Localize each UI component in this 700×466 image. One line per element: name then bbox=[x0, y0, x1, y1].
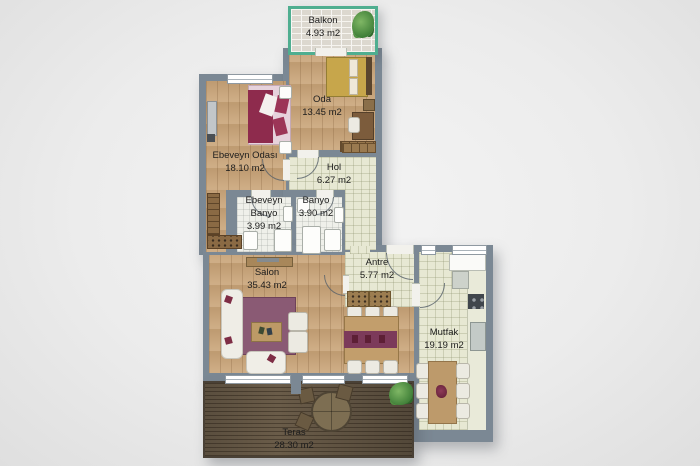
table-decor bbox=[379, 335, 385, 343]
centerpiece bbox=[436, 385, 447, 398]
room-name: Banyo bbox=[246, 207, 283, 220]
room-area: 18.10 m2 bbox=[213, 162, 278, 175]
shoe-shelf bbox=[207, 235, 242, 249]
armchair bbox=[288, 312, 308, 331]
headboard bbox=[366, 57, 372, 95]
sink bbox=[334, 207, 344, 223]
dining-chair bbox=[365, 360, 380, 374]
shower bbox=[324, 229, 341, 251]
window-salon-left bbox=[225, 375, 291, 384]
window-antre bbox=[421, 245, 436, 255]
shoe-cabinet bbox=[347, 291, 369, 307]
nightstand bbox=[363, 99, 375, 111]
room-label-ebeveyn-banyo: Ebeveyn Banyo 3.99 m2 bbox=[246, 194, 283, 233]
nightstand bbox=[279, 141, 292, 154]
room-area: 6.27 m2 bbox=[317, 174, 351, 187]
room-label-antre: Antre 5.77 m2 bbox=[360, 256, 394, 282]
room-hol-floor-lower bbox=[345, 190, 376, 250]
balcony-door-threshold bbox=[315, 48, 347, 56]
kitchen-chair bbox=[456, 403, 470, 419]
dresser bbox=[207, 101, 217, 136]
terrace-pillar bbox=[291, 373, 301, 394]
room-area: 35.43 m2 bbox=[247, 279, 287, 292]
bed-single bbox=[326, 57, 368, 97]
room-name: Antre bbox=[360, 256, 394, 269]
kitchen-sink bbox=[470, 322, 486, 351]
room-name: Mutfak bbox=[424, 326, 464, 339]
pillow bbox=[349, 78, 358, 95]
window-mutfak bbox=[452, 245, 487, 255]
ebeveyn-door-threshold bbox=[283, 159, 290, 181]
fridge bbox=[449, 254, 486, 271]
room-name: Teras bbox=[274, 426, 314, 439]
room-name: Ebeveyn bbox=[246, 194, 283, 207]
room-area: 3.90 m2 bbox=[299, 207, 333, 220]
shoe-cabinet bbox=[369, 291, 391, 307]
table-decor bbox=[266, 328, 272, 336]
nightstand bbox=[279, 86, 292, 99]
window-salon-right bbox=[302, 375, 345, 384]
bathtub bbox=[302, 226, 321, 254]
room-name: Hol bbox=[317, 161, 351, 174]
loveseat bbox=[246, 351, 286, 374]
room-name: Salon bbox=[247, 266, 287, 279]
room-label-banyo: Banyo 3.90 m2 bbox=[299, 194, 333, 220]
room-label-salon: Salon 35.43 m2 bbox=[247, 266, 287, 292]
dining-chair bbox=[347, 360, 362, 374]
table-decor bbox=[365, 335, 371, 343]
toilet bbox=[243, 231, 258, 250]
armchair bbox=[288, 331, 308, 353]
hall-cabinet bbox=[342, 143, 376, 153]
kitchen-door-threshold bbox=[412, 283, 420, 307]
room-area: 13.45 m2 bbox=[302, 106, 342, 119]
room-name: Banyo bbox=[299, 194, 333, 207]
stove bbox=[468, 294, 484, 309]
room-area: 3.99 m2 bbox=[246, 220, 283, 233]
room-name: Ebeveyn Odası bbox=[213, 149, 278, 162]
room-label-ebeveyn-odasi: Ebeveyn Odası 18.10 m2 bbox=[213, 149, 278, 175]
kitchen-chair bbox=[456, 363, 470, 379]
room-label-oda: Oda 13.45 m2 bbox=[302, 93, 342, 119]
table-decor bbox=[352, 335, 358, 343]
room-label-hol: Hol 6.27 m2 bbox=[317, 161, 351, 187]
wardrobe bbox=[207, 193, 220, 235]
room-name: Balkon bbox=[306, 14, 340, 27]
room-area: 19.19 m2 bbox=[424, 339, 464, 352]
sink bbox=[283, 206, 293, 222]
desk-chair bbox=[348, 117, 360, 133]
counter-corner bbox=[452, 271, 469, 289]
wall-unit bbox=[207, 134, 215, 142]
room-label-mutfak: Mutfak 19.19 m2 bbox=[424, 326, 464, 352]
room-area: 4.93 m2 bbox=[306, 27, 340, 40]
floor-plan-canvas: Balkon 4.93 m2 Oda 13.45 m2 Ebeveyn Odas… bbox=[0, 0, 700, 466]
dining-chair bbox=[383, 360, 398, 374]
pillow bbox=[349, 59, 358, 77]
room-area: 5.77 m2 bbox=[360, 269, 394, 282]
room-label-teras: Teras 28.30 m2 bbox=[274, 426, 314, 452]
hol-antre-passage bbox=[350, 246, 370, 254]
room-area: 28.30 m2 bbox=[274, 439, 314, 452]
window-ebeveyn bbox=[227, 74, 273, 84]
room-label-balkon: Balkon 4.93 m2 bbox=[306, 14, 340, 40]
tv bbox=[257, 258, 279, 262]
kitchen-chair bbox=[456, 383, 470, 399]
room-name: Oda bbox=[302, 93, 342, 106]
